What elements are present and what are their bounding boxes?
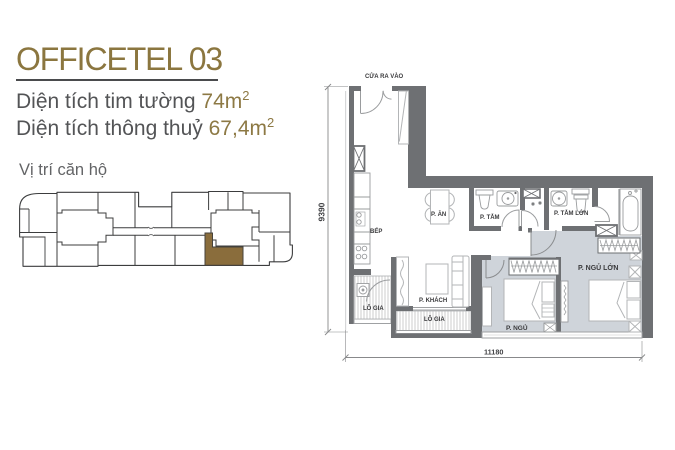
svg-text:CỬA RA VÀO: CỬA RA VÀO [365, 73, 404, 80]
svg-text:9390: 9390 [317, 202, 327, 221]
svg-text:P. NGỦ: P. NGỦ [506, 323, 528, 332]
svg-text:P. TẮM: P. TẮM [480, 213, 500, 221]
svg-text:P. TẮM LỚN: P. TẮM LỚN [554, 209, 588, 217]
svg-text:LÔ GIA: LÔ GIA [363, 304, 384, 312]
svg-text:LÔ GIA: LÔ GIA [424, 315, 445, 323]
svg-text:P. KHÁCH: P. KHÁCH [419, 297, 447, 304]
svg-text:11180: 11180 [484, 348, 504, 357]
svg-text:P. ĂN: P. ĂN [431, 211, 446, 218]
svg-text:BẾP: BẾP [370, 228, 382, 235]
svg-text:P. NGỦ LỚN: P. NGỦ LỚN [578, 263, 618, 272]
